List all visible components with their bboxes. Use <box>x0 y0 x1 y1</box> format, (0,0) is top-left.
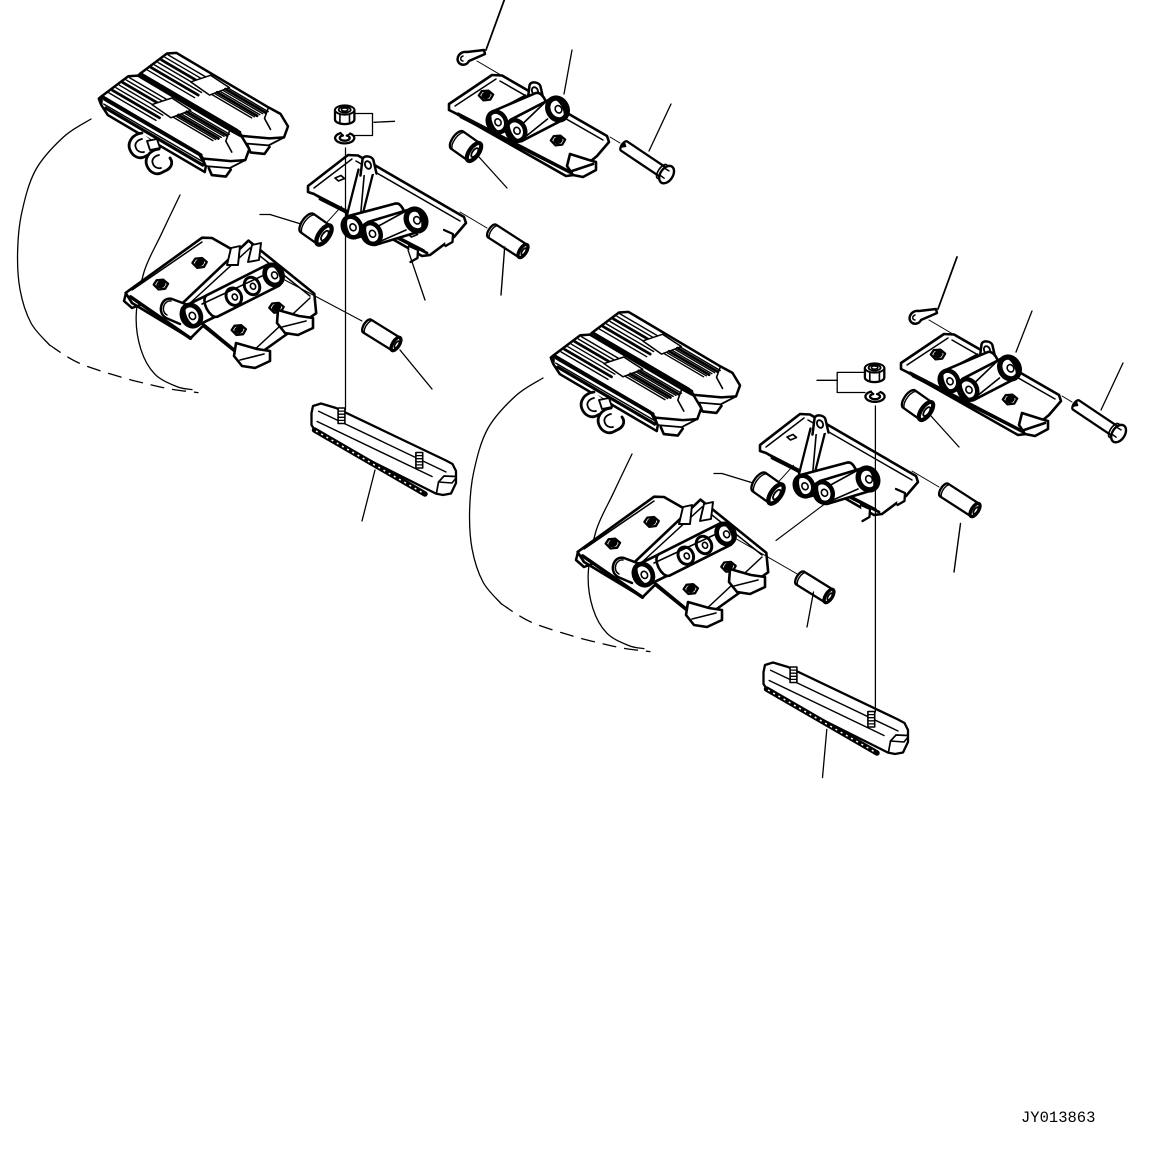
svg-text:JY013863: JY013863 <box>1021 1109 1095 1127</box>
